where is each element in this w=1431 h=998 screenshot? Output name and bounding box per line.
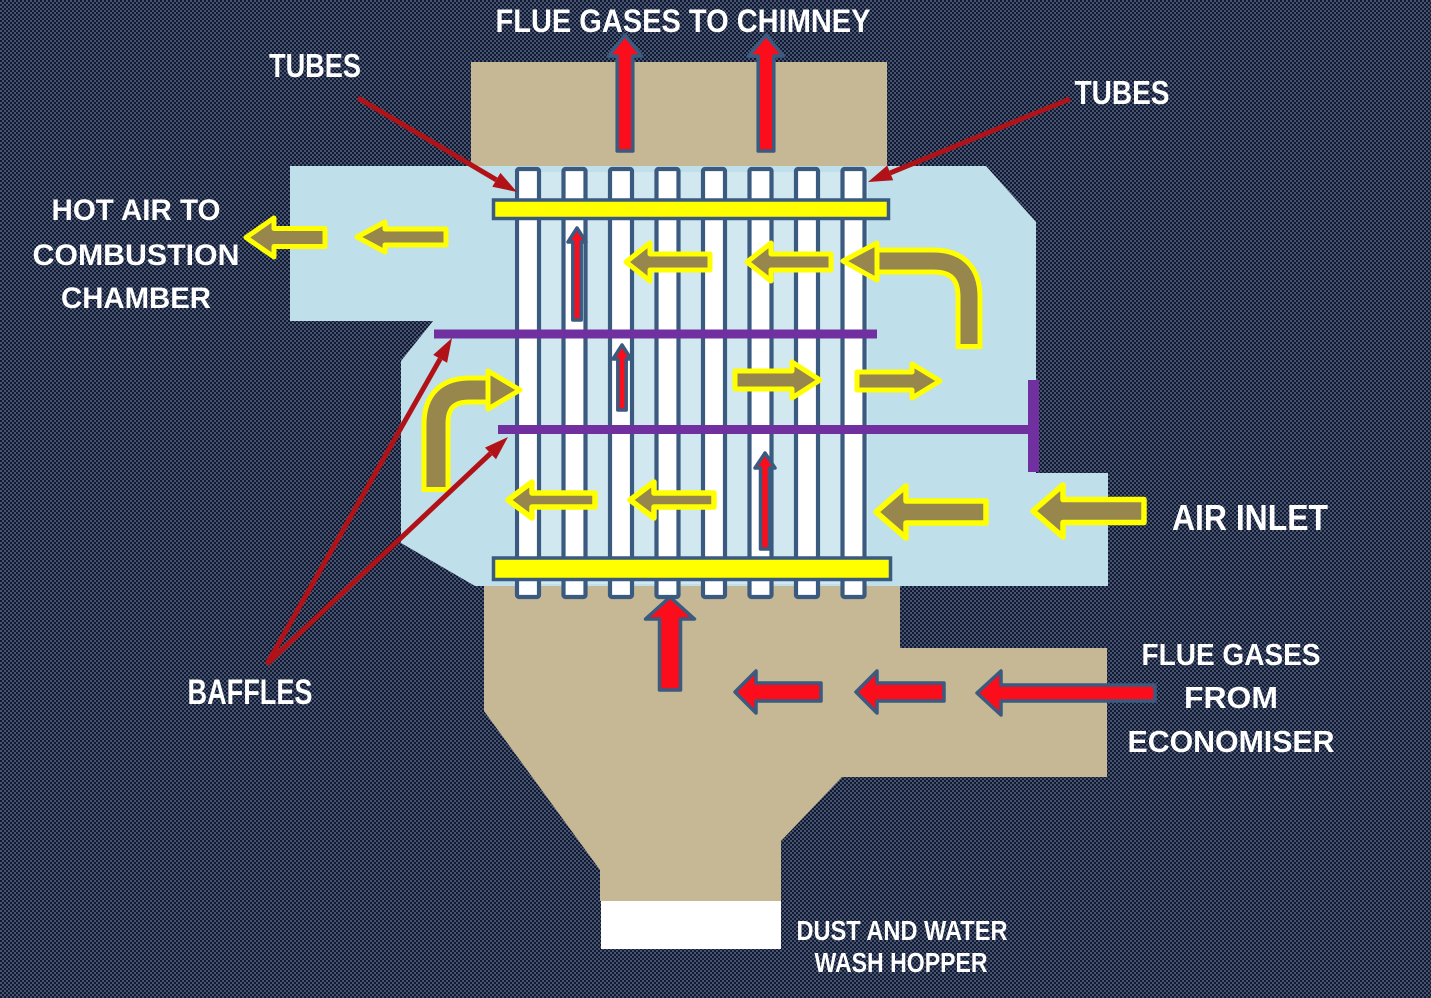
svg-text:BAFFLES: BAFFLES	[188, 673, 313, 712]
svg-text:DUST AND WATER: DUST AND WATER	[797, 915, 1008, 946]
svg-text:TUBES: TUBES	[269, 47, 361, 84]
svg-text:COMBUSTION: COMBUSTION	[33, 239, 240, 272]
svg-text:ECONOMISER: ECONOMISER	[1128, 724, 1335, 759]
svg-text:AIR INLET: AIR INLET	[1172, 497, 1328, 538]
svg-text:WASH HOPPER: WASH HOPPER	[815, 947, 988, 978]
svg-text:FROM: FROM	[1184, 680, 1278, 715]
svg-text:HOT AIR TO: HOT AIR TO	[52, 194, 221, 227]
svg-text:FLUE GASES: FLUE GASES	[1142, 637, 1321, 672]
svg-text:TUBES: TUBES	[1075, 74, 1170, 111]
svg-text:CHAMBER: CHAMBER	[61, 282, 211, 315]
svg-text:FLUE GASES TO CHIMNEY: FLUE GASES TO CHIMNEY	[496, 3, 871, 39]
